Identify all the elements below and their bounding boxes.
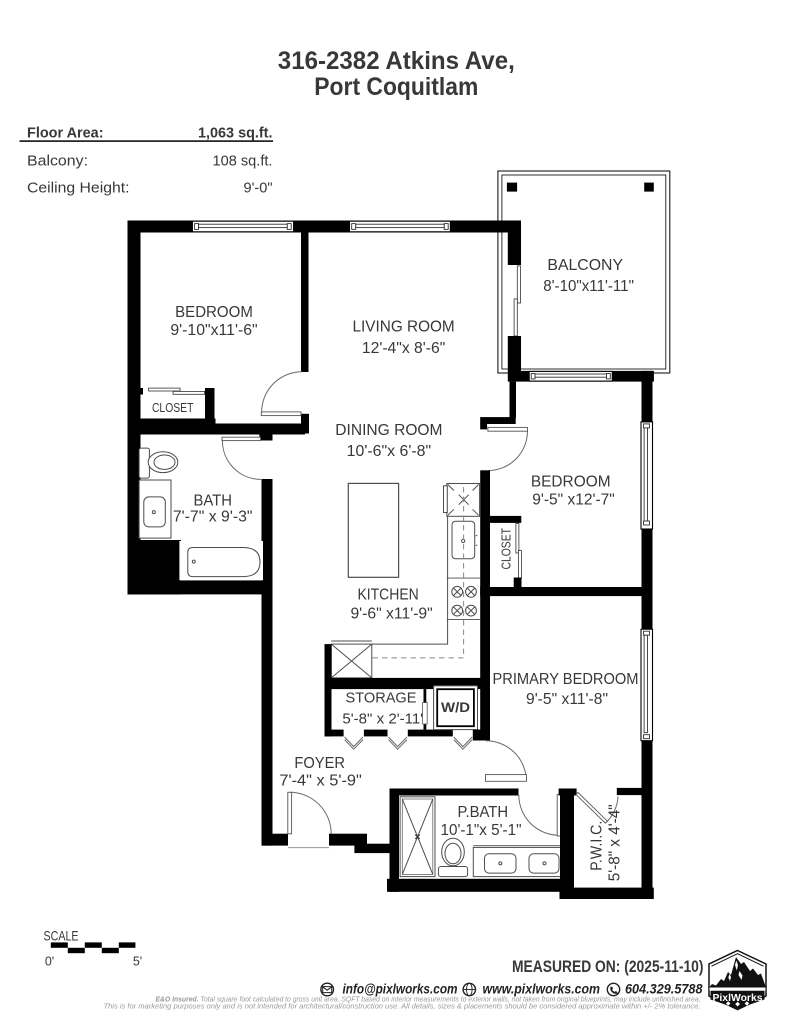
svg-text:9'-5" x11'-8": 9'-5" x11'-8" xyxy=(526,691,608,708)
svg-text:This is for marketing purposes: This is for marketing purposes only and … xyxy=(104,1004,701,1011)
svg-text:info@pixlworks.com: info@pixlworks.com xyxy=(343,980,458,996)
svg-text:5'-8" x 2'-11": 5'-8" x 2'-11" xyxy=(342,711,425,728)
svg-text:9'-6" x11'-9": 9'-6" x11'-9" xyxy=(350,606,432,623)
svg-text:CLOSET: CLOSET xyxy=(152,400,194,415)
svg-text:10'-6"x 6'-8": 10'-6"x 6'-8" xyxy=(347,443,432,460)
svg-text:Balcony:: Balcony: xyxy=(27,152,88,169)
svg-text:P.W.I.C.: P.W.I.C. xyxy=(588,821,605,871)
svg-text:BEDROOM: BEDROOM xyxy=(531,474,611,491)
svg-text:5': 5' xyxy=(133,955,142,969)
svg-text:10'-1"x 5'-1": 10'-1"x 5'-1" xyxy=(441,822,522,839)
svg-text:108 sq.ft.: 108 sq.ft. xyxy=(213,152,273,169)
svg-text:KITCHEN: KITCHEN xyxy=(357,587,418,604)
svg-text:7'-7" x 9'-3": 7'-7" x 9'-3" xyxy=(173,508,253,525)
svg-text:1,063 sq.ft.: 1,063 sq.ft. xyxy=(198,125,273,142)
svg-text:0': 0' xyxy=(45,955,54,969)
svg-text:9'-10"x11'-6": 9'-10"x11'-6" xyxy=(170,322,257,339)
svg-text:Port Coquitlam: Port Coquitlam xyxy=(314,73,478,101)
svg-text:SCALE: SCALE xyxy=(44,928,79,944)
svg-text:BATH: BATH xyxy=(193,492,232,509)
svg-text:5'-8" x 4'-4": 5'-8" x 4'-4" xyxy=(606,804,623,881)
svg-text:PRIMARY BEDROOM: PRIMARY BEDROOM xyxy=(493,671,639,688)
svg-text:FOYER: FOYER xyxy=(294,755,345,772)
svg-text:P.BATH: P.BATH xyxy=(458,804,509,821)
svg-text:CLOSET: CLOSET xyxy=(498,528,513,570)
svg-text:7'-4" x 5'-9": 7'-4" x 5'-9" xyxy=(279,773,362,790)
svg-text:12'-4"x 8'-6": 12'-4"x 8'-6" xyxy=(362,340,445,357)
svg-text:604.329.5788: 604.329.5788 xyxy=(625,980,703,996)
svg-text:8'-10"x11'-11": 8'-10"x11'-11" xyxy=(543,278,634,295)
svg-text:W/D: W/D xyxy=(441,700,470,715)
svg-text:STORAGE: STORAGE xyxy=(346,689,417,706)
svg-text:MEASURED ON: (2025-11-10): MEASURED ON: (2025-11-10) xyxy=(512,958,704,976)
svg-text:9'-0": 9'-0" xyxy=(244,180,273,197)
svg-text:9'-5" x12'-7": 9'-5" x12'-7" xyxy=(532,491,615,508)
svg-text:Floor Area:: Floor Area: xyxy=(27,125,104,142)
svg-text:DINING ROOM: DINING ROOM xyxy=(335,422,442,439)
svg-text:www.pixlworks.com: www.pixlworks.com xyxy=(483,980,601,996)
svg-text:LIVING ROOM: LIVING ROOM xyxy=(353,319,455,336)
svg-text:Ceiling Height:: Ceiling Height: xyxy=(27,180,130,197)
svg-text:316-2382 Atkins Ave,: 316-2382 Atkins Ave, xyxy=(278,47,515,75)
svg-text:BEDROOM: BEDROOM xyxy=(175,304,253,321)
svg-text:BALCONY: BALCONY xyxy=(547,257,623,274)
svg-text:E&O Insured. Total square foo: E&O Insured. Total square foot calculate… xyxy=(156,997,701,1004)
